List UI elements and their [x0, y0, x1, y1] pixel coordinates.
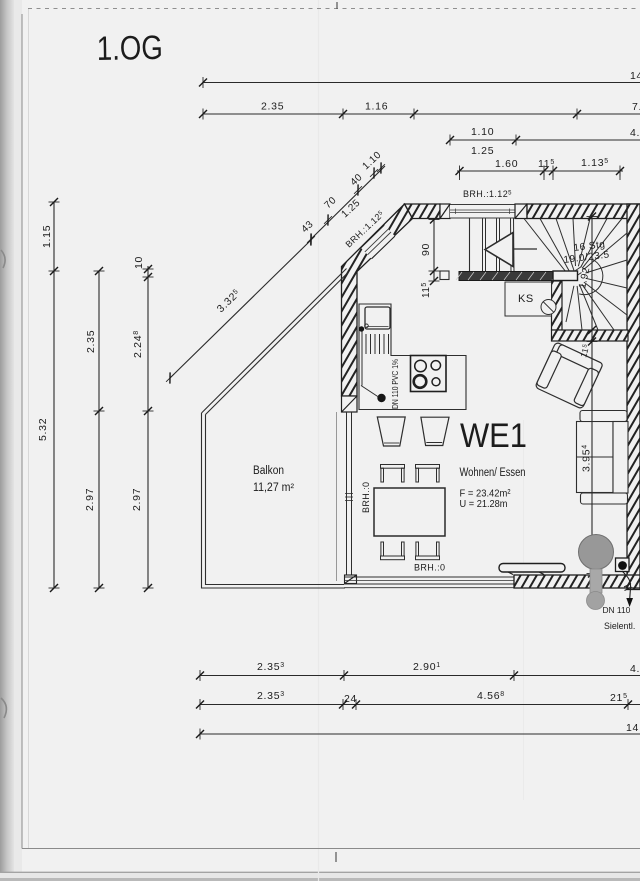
svg-text:4.: 4.: [630, 127, 640, 139]
svg-text:14.: 14.: [630, 70, 640, 82]
svg-text:90: 90: [420, 243, 432, 256]
svg-text:WE1: WE1: [460, 417, 527, 455]
svg-text:2.97: 2.97: [131, 488, 143, 511]
svg-text:DN 110: DN 110: [603, 605, 631, 615]
svg-text:11,27 m²: 11,27 m²: [253, 482, 294, 494]
svg-text:Sielentl.: Sielentl.: [604, 621, 635, 631]
svg-text:BRH.:0: BRH.:0: [361, 482, 371, 513]
svg-text:4.2: 4.2: [630, 663, 640, 675]
svg-text:10: 10: [133, 256, 145, 269]
svg-text:1.10: 1.10: [471, 126, 494, 138]
svg-text:1.15: 1.15: [41, 225, 53, 248]
svg-text:Wohnen/ Essen: Wohnen/ Essen: [460, 467, 526, 479]
svg-text:2.97: 2.97: [84, 488, 96, 511]
svg-text:KS: KS: [518, 293, 534, 305]
svg-text:2.35: 2.35: [85, 330, 97, 353]
svg-text:U = 21.28m: U = 21.28m: [460, 498, 508, 510]
svg-text:1.25: 1.25: [471, 145, 494, 157]
svg-text:BRH.:0: BRH.:0: [414, 563, 445, 573]
svg-text:1.16: 1.16: [365, 101, 388, 113]
svg-text:1.OG: 1.OG: [96, 29, 163, 68]
svg-text:7.: 7.: [632, 101, 640, 113]
svg-text:BRH.:1.125: BRH.:1.125: [463, 189, 512, 199]
svg-text:5.32: 5.32: [37, 418, 49, 441]
svg-text:DN 110 PVC 1%: DN 110 PVC 1%: [390, 359, 400, 409]
svg-text:Balkon: Balkon: [253, 465, 284, 477]
svg-text:24: 24: [344, 693, 357, 705]
svg-text:2.35: 2.35: [261, 101, 284, 113]
svg-text:14.3: 14.3: [626, 722, 640, 734]
svg-text:1.60: 1.60: [495, 158, 518, 170]
